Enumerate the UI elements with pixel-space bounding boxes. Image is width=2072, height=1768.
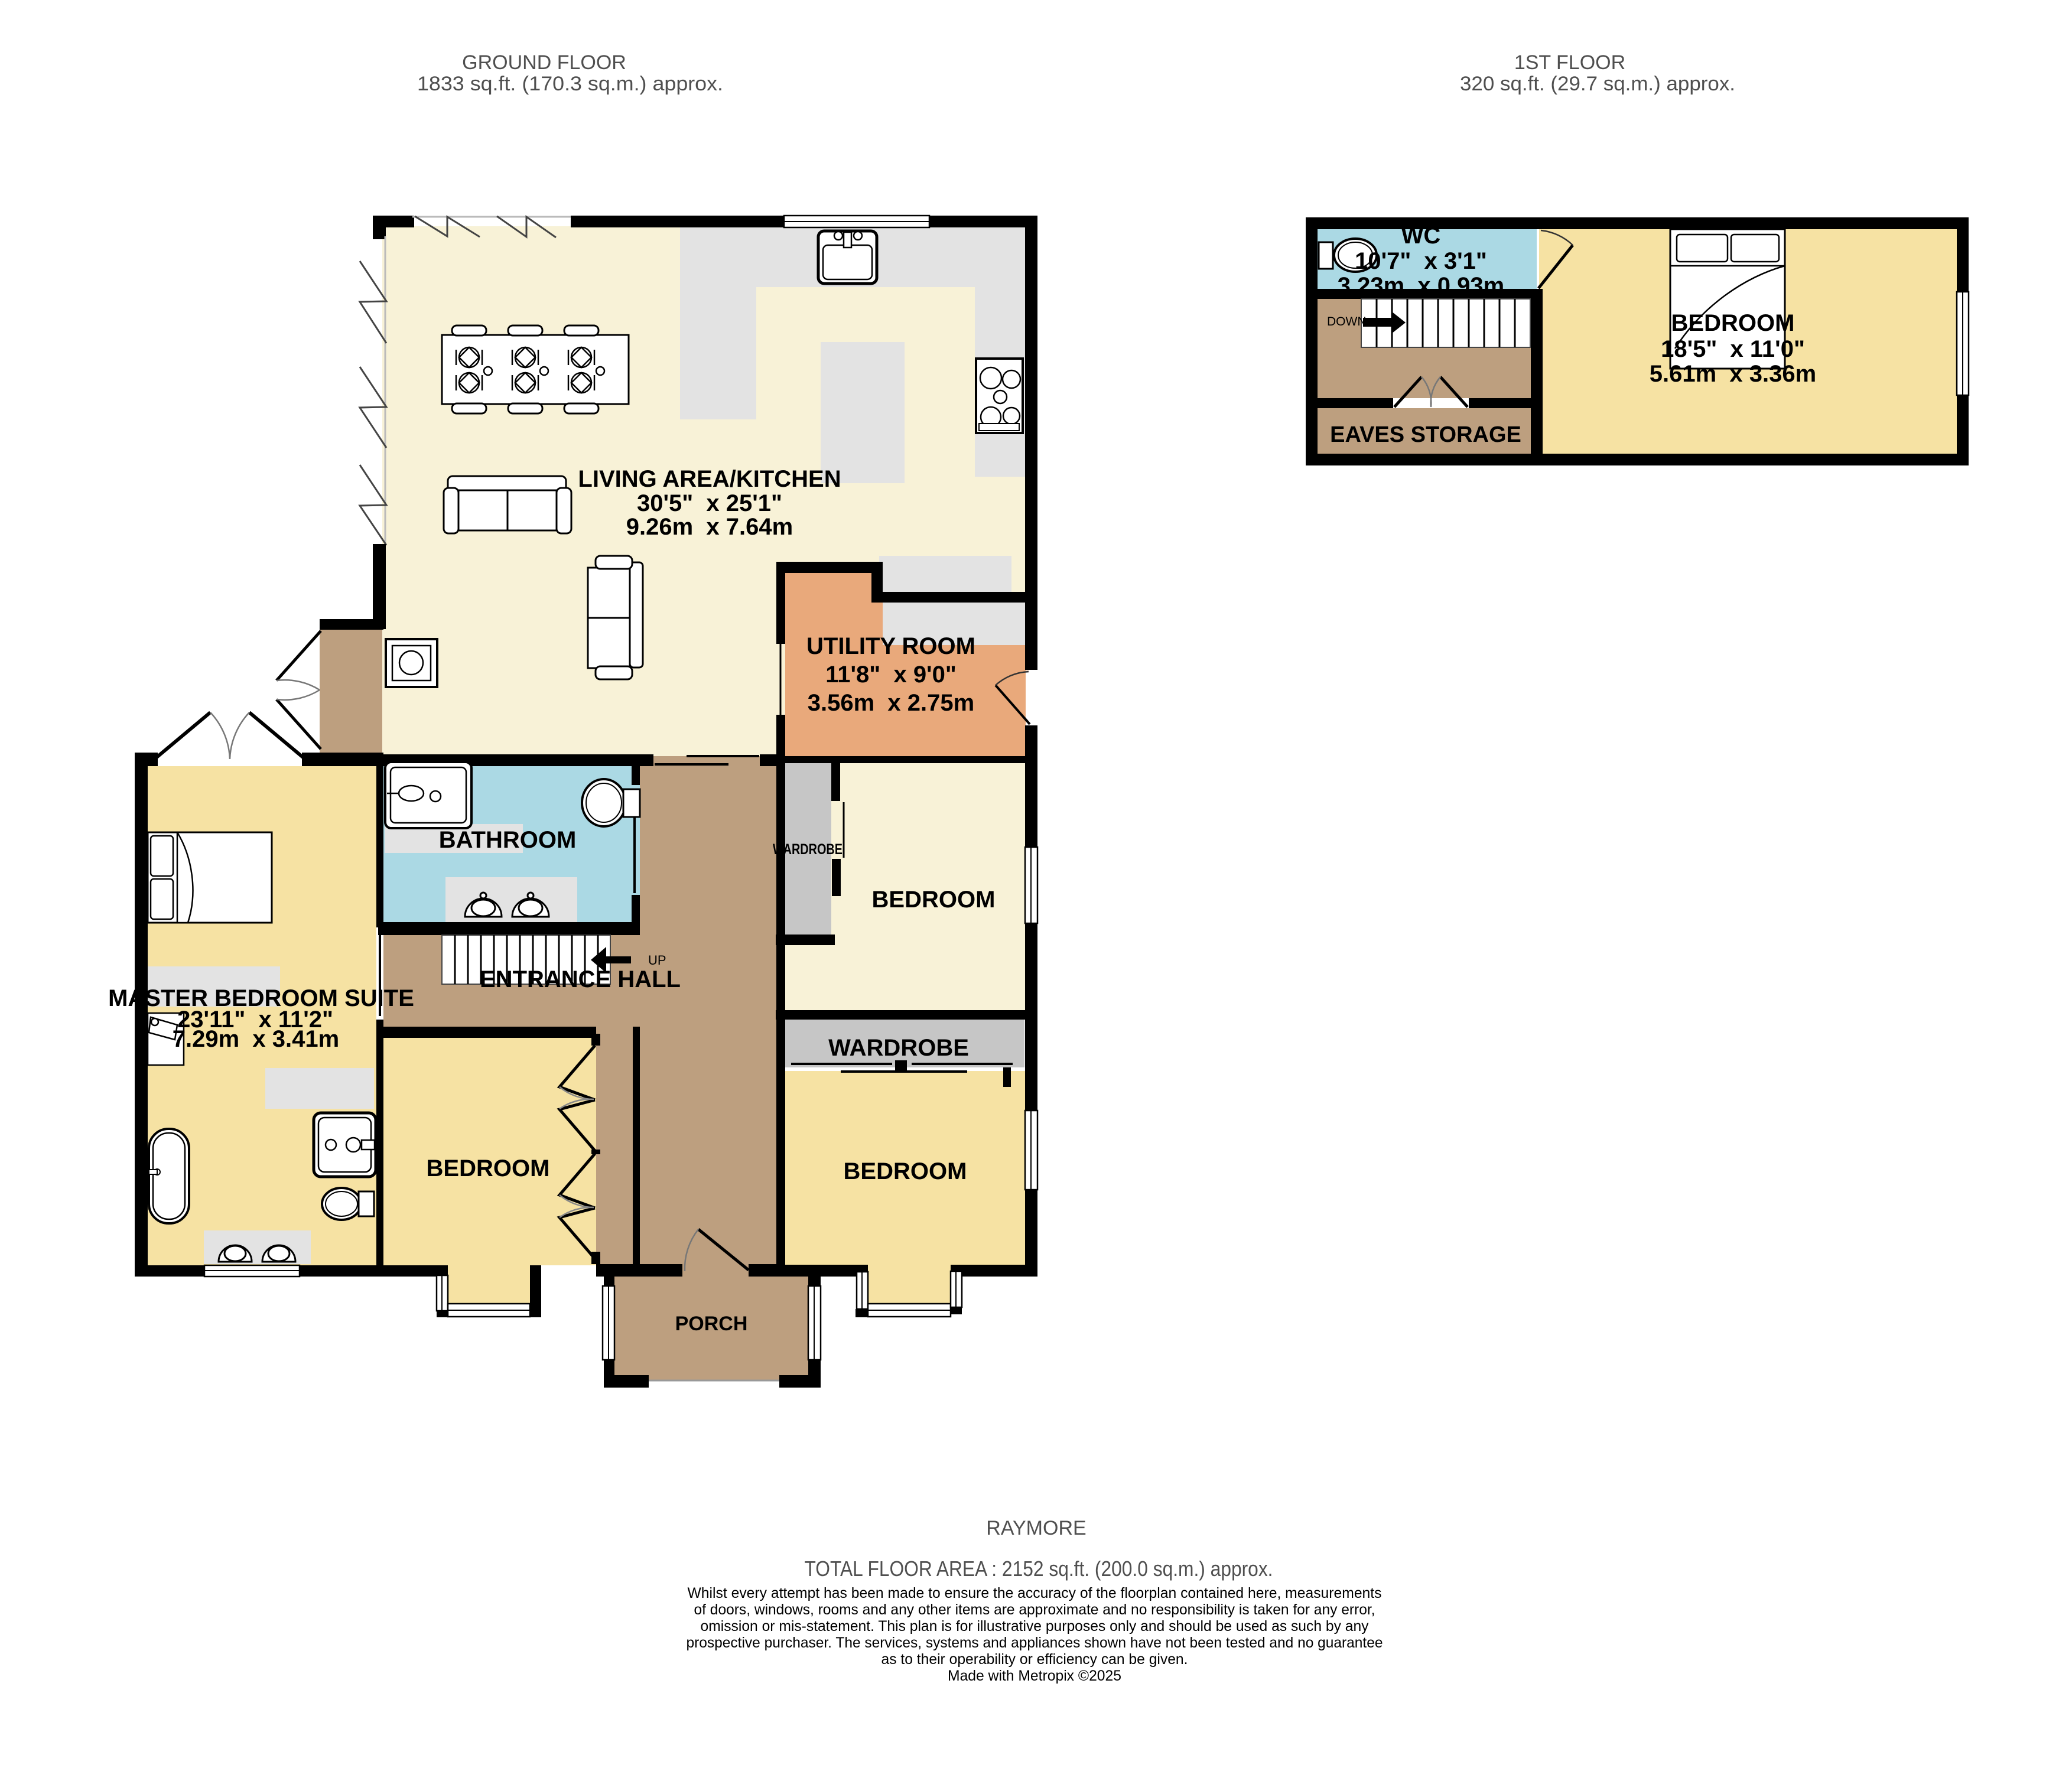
svg-text:3.56m x 2.75m: 3.56m x 2.75m	[808, 690, 974, 716]
svg-text:of doors, windows, rooms and a: of doors, windows, rooms and any other i…	[694, 1601, 1375, 1618]
svg-text:ENTRANCE HALL: ENTRANCE HALL	[480, 966, 681, 992]
svg-text:omission or mis-statement. Thi: omission or mis-statement. This plan is …	[701, 1618, 1369, 1634]
svg-text:Whilst every attempt has been: Whilst every attempt has been made to en…	[688, 1585, 1382, 1601]
svg-text:DOWN: DOWN	[1327, 315, 1367, 328]
svg-text:WARDROBE: WARDROBE	[773, 841, 843, 858]
svg-text:PORCH: PORCH	[675, 1313, 748, 1335]
svg-text:10'7" x 3'1": 10'7" x 3'1"	[1355, 248, 1487, 274]
svg-text:UTILITY ROOM: UTILITY ROOM	[806, 633, 975, 659]
svg-text:GROUND FLOOR: GROUND FLOOR	[462, 51, 626, 74]
svg-text:BEDROOM: BEDROOM	[1671, 310, 1795, 336]
svg-text:3.23m x 0.93m: 3.23m x 0.93m	[1338, 273, 1504, 299]
svg-text:30'5" x 25'1": 30'5" x 25'1"	[637, 490, 782, 516]
svg-text:18'5" x 11'0": 18'5" x 11'0"	[1661, 336, 1805, 362]
svg-text:7.29m x 3.41m: 7.29m x 3.41m	[173, 1026, 339, 1052]
svg-text:WC: WC	[1401, 223, 1441, 249]
svg-text:BEDROOM: BEDROOM	[844, 1158, 967, 1184]
svg-text:1ST FLOOR: 1ST FLOOR	[1514, 51, 1625, 74]
svg-text:BEDROOM: BEDROOM	[427, 1155, 550, 1181]
svg-text:9.26m x 7.64m: 9.26m x 7.64m	[626, 514, 793, 540]
svg-text:EAVES STORAGE: EAVES STORAGE	[1330, 422, 1521, 447]
svg-text:as to their operability or eff: as to their operability or efficiency ca…	[882, 1651, 1188, 1668]
svg-text:RAYMORE: RAYMORE	[986, 1517, 1086, 1539]
svg-text:1833 sq.ft. (170.3 sq.m.) appr: 1833 sq.ft. (170.3 sq.m.) approx.	[417, 73, 723, 95]
svg-text:11'8" x 9'0": 11'8" x 9'0"	[825, 662, 957, 688]
svg-text:320 sq.ft. (29.7 sq.m.) approx: 320 sq.ft. (29.7 sq.m.) approx.	[1460, 73, 1735, 95]
svg-text:UP: UP	[648, 953, 666, 968]
svg-text:prospective purchaser. The ser: prospective purchaser. The services, sys…	[687, 1634, 1383, 1651]
svg-text:TOTAL FLOOR AREA : 2152 sq.ft.: TOTAL FLOOR AREA : 2152 sq.ft. (200.0 sq…	[805, 1557, 1273, 1581]
svg-text:5.61m x 3.36m: 5.61m x 3.36m	[1650, 361, 1816, 387]
svg-text:LIVING AREA/KITCHEN: LIVING AREA/KITCHEN	[578, 466, 841, 492]
svg-text:BEDROOM: BEDROOM	[872, 887, 996, 913]
svg-text:WARDROBE: WARDROBE	[828, 1035, 969, 1061]
svg-text:BATHROOM: BATHROOM	[439, 827, 577, 853]
svg-text:Made with Metropix ©2025: Made with Metropix ©2025	[948, 1668, 1121, 1684]
